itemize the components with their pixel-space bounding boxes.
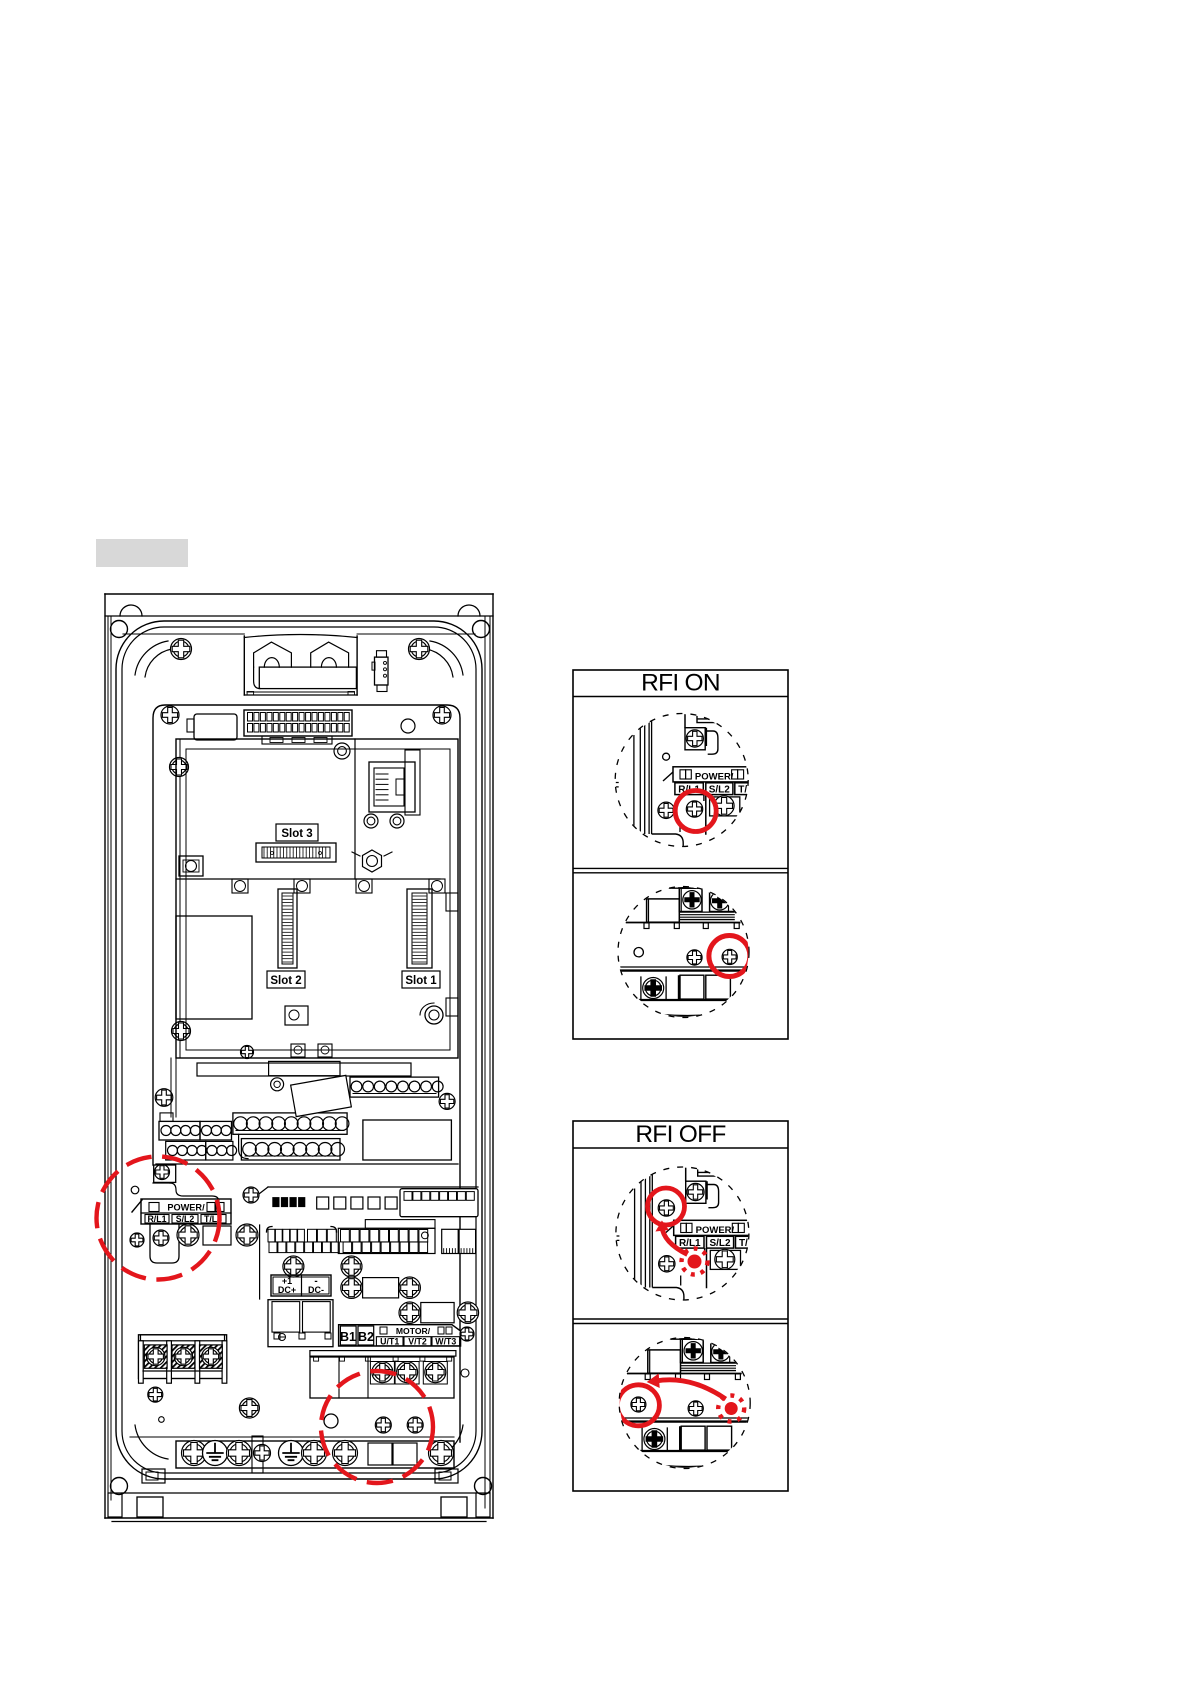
svg-text:T/: T/ [739,1238,748,1249]
svg-text:POWER/: POWER/ [696,1225,735,1236]
svg-text:B2: B2 [358,1330,374,1344]
svg-text:B1: B1 [340,1330,356,1344]
svg-text:T/: T/ [738,784,747,795]
svg-text:Slot 2: Slot 2 [270,975,301,987]
svg-text:RFI ON: RFI ON [641,670,720,697]
svg-text:S/L2: S/L2 [709,1238,731,1249]
svg-text:S/L2: S/L2 [176,1214,195,1224]
svg-text:U/T1: U/T1 [380,1337,399,1347]
svg-text:MOTOR/: MOTOR/ [396,1326,431,1336]
svg-text:Slot 3: Slot 3 [281,828,312,840]
svg-text:POWER/: POWER/ [167,1203,205,1213]
svg-text:DC-: DC- [308,1285,324,1295]
svg-text:Slot 1: Slot 1 [405,975,437,987]
svg-text:POWER/: POWER/ [695,772,734,783]
svg-text:W/T3: W/T3 [435,1337,456,1347]
svg-text:R/L1: R/L1 [147,1214,166,1224]
svg-text:DC+: DC+ [278,1285,296,1295]
svg-text:V/T2: V/T2 [408,1337,427,1347]
svg-text:RFI OFF: RFI OFF [635,1121,725,1148]
svg-text:S/L2: S/L2 [709,784,731,795]
